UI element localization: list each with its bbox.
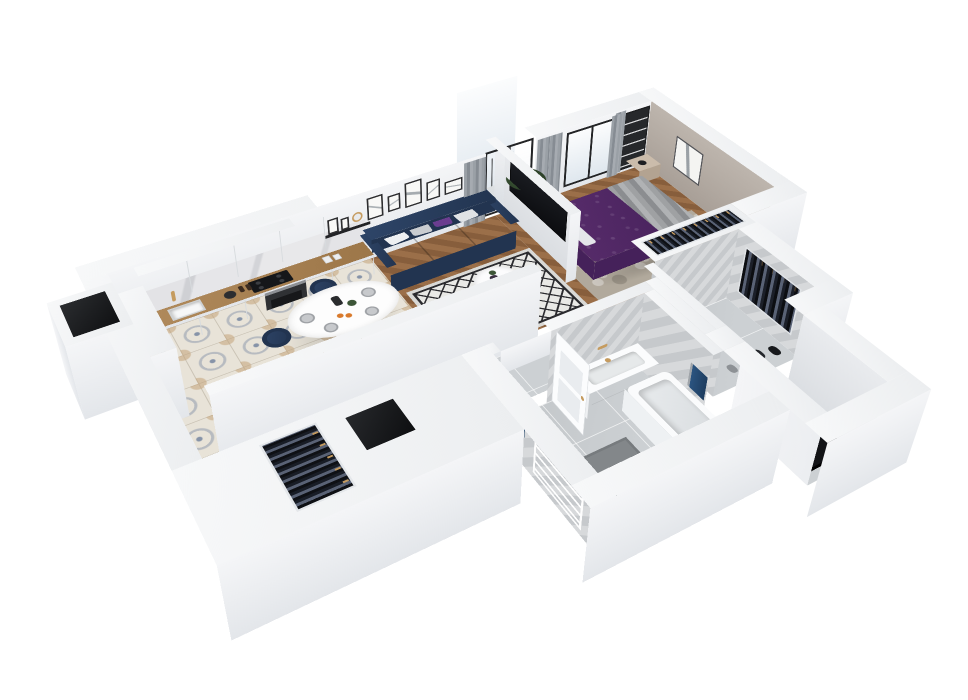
nightstand-lamp — [636, 160, 648, 166]
wine-bottle — [330, 295, 344, 306]
gallery-frame-3 — [404, 178, 422, 208]
shaft-opening-south — [345, 399, 415, 450]
place-setting-2 — [358, 286, 378, 299]
kitchen-kettle — [222, 290, 238, 301]
apartment-3d-scene — [5, 120, 968, 700]
gallery-frame-5 — [445, 177, 463, 196]
gallery-frame-1 — [367, 194, 384, 221]
orange-fruit — [336, 313, 345, 319]
pepper-grinders — [237, 286, 245, 293]
floorplan-render-canvas — [0, 0, 968, 700]
place-setting-3 — [321, 321, 340, 334]
place-setting-1 — [297, 311, 317, 325]
table-plant — [346, 299, 359, 307]
gallery-frame-4 — [426, 178, 440, 201]
kitchen-canister-2 — [332, 253, 342, 260]
bathroom-wall-faucet — [597, 343, 607, 350]
gallery-frame-2 — [387, 193, 400, 213]
feather-artwork-frame — [673, 136, 704, 187]
kitchen-canister-1 — [322, 255, 334, 263]
door-handle — [581, 395, 584, 402]
place-setting-4 — [362, 305, 381, 318]
shaft-opening-north — [60, 291, 120, 337]
hallway-coat-niche — [259, 422, 357, 512]
